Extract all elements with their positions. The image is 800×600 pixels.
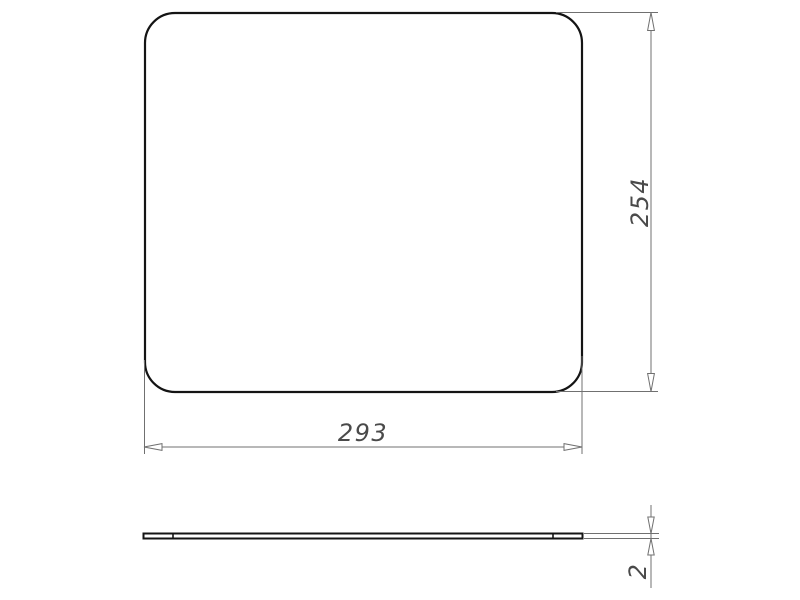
side-view: 2 [144,505,660,588]
arrowhead-up [648,13,655,31]
drawing-sheet: 293 254 2 [0,0,800,600]
top-view: 293 254 [144,13,658,455]
arrowhead-up [648,539,654,556]
arrowhead-left [144,444,162,451]
drawing-canvas: 293 254 2 [0,0,800,600]
arrowhead-right [564,444,582,451]
width-dimension-label: 293 [338,419,388,447]
side-view-outline [144,534,583,539]
height-dimension-label: 254 [626,177,654,227]
thickness-dimension-label: 2 [624,563,652,580]
arrowhead-down [648,517,654,534]
top-view-outline [145,13,582,392]
arrowhead-down [648,374,655,392]
thickness-dimension: 2 [584,505,659,588]
